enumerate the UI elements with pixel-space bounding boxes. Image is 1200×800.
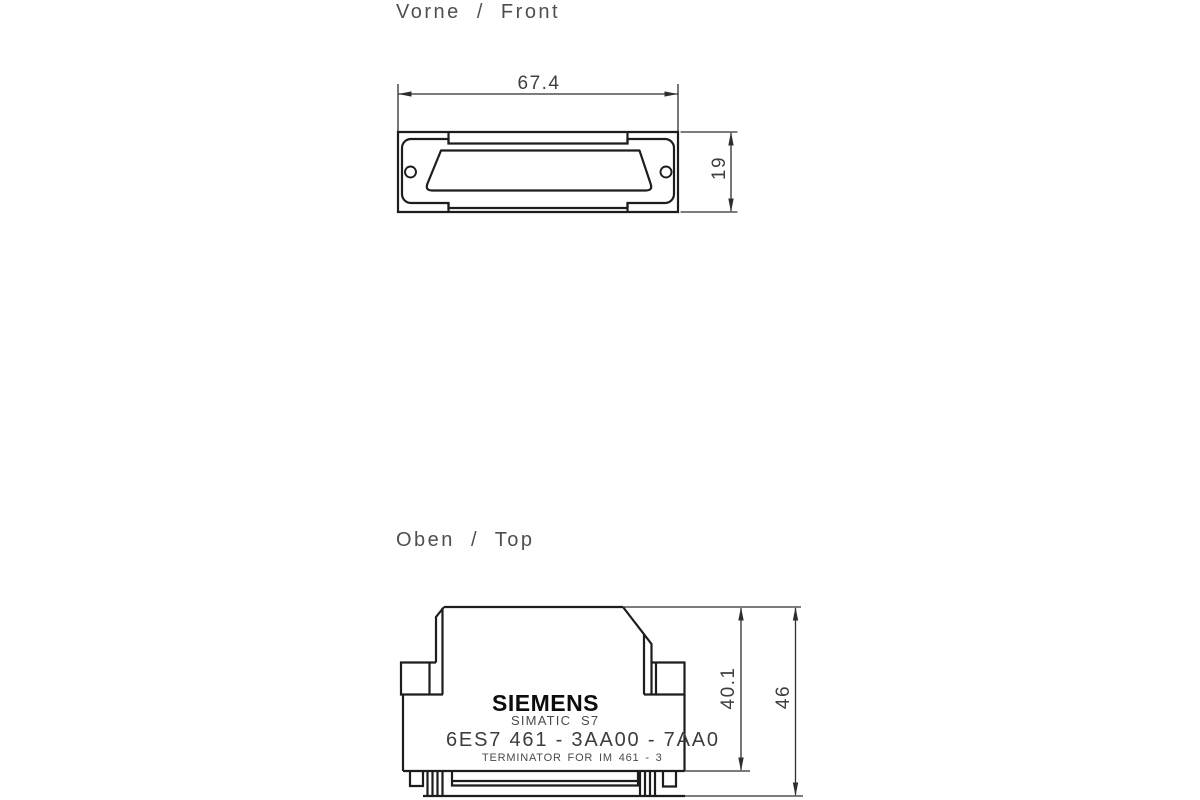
front-width-dimension-value: 67.4 <box>398 73 680 95</box>
top-depth-body-arrow-bottom <box>738 758 743 772</box>
top-left-feet <box>410 771 443 796</box>
top-right-chamfer-edges <box>623 607 652 695</box>
top-right-ear <box>644 663 685 695</box>
technical-drawing-page: Vorne / Front 67.4 19 Oben / Top SIEMENS… <box>0 0 1200 800</box>
top-depth-total-arrow-bottom <box>793 783 798 797</box>
front-connector-plate <box>402 139 674 208</box>
product-line-label: SIMATIC S7 <box>511 713 599 728</box>
front-height-dimension-value: 19 <box>709 126 731 210</box>
top-depth-body-dimension-value: 40.1 <box>718 633 740 743</box>
top-depth-body-arrow-top <box>738 607 743 621</box>
front-view-drawing <box>398 84 738 212</box>
drawing-canvas <box>0 0 1200 800</box>
top-left-ear <box>401 663 443 695</box>
front-dsub-opening <box>427 151 651 191</box>
top-rear-step-block <box>452 771 638 786</box>
order-number-label: 6ES7 461 - 3AA00 - 7AA0 <box>446 729 704 752</box>
top-right-feet <box>640 771 676 796</box>
screw-hole-right <box>661 167 672 178</box>
top-depth-total-arrow-top <box>793 607 798 621</box>
top-view-drawing <box>401 607 803 796</box>
top-view-title: Oben / Top <box>396 529 534 552</box>
front-view-title: Vorne / Front <box>396 1 560 24</box>
screw-hole-left <box>405 167 416 178</box>
module-description-label: TERMINATOR FOR IM 461 - 3 <box>482 752 640 764</box>
top-left-bevel-edges <box>436 607 444 695</box>
top-depth-total-dimension-value: 46 <box>773 642 795 752</box>
